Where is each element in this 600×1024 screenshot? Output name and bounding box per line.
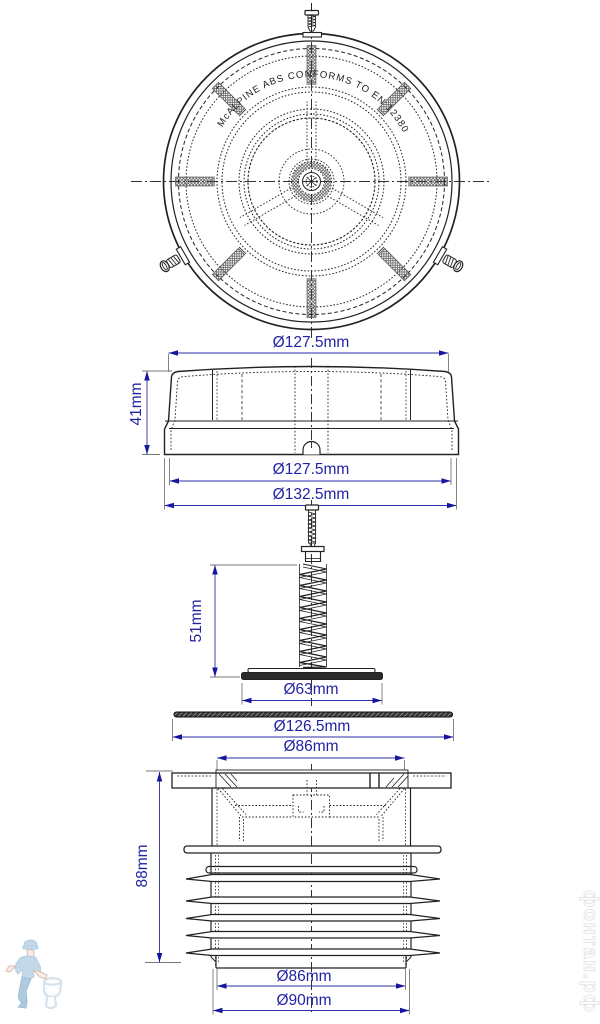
- svg-text:Ø86mm: Ø86mm: [283, 738, 338, 755]
- svg-text:41mm: 41mm: [128, 382, 145, 425]
- svg-text:Ø126.5mm: Ø126.5mm: [274, 718, 351, 735]
- svg-text:88mm: 88mm: [134, 844, 151, 887]
- svg-text:McALPINE ABS CONFORMS TO EN 12: McALPINE ABS CONFORMS TO EN 12380: [215, 69, 410, 134]
- svg-text:Ø127.5mm: Ø127.5mm: [273, 334, 350, 351]
- svg-text:Ø86mm: Ø86mm: [276, 968, 331, 985]
- svg-text:51mm: 51mm: [188, 599, 205, 642]
- svg-text:Ø127.5mm: Ø127.5mm: [273, 461, 350, 478]
- svg-text:фонтан.рф: фонтан.рф: [579, 890, 600, 1013]
- svg-text:Ø63mm: Ø63mm: [283, 681, 338, 698]
- svg-text:Ø90mm: Ø90mm: [276, 992, 331, 1009]
